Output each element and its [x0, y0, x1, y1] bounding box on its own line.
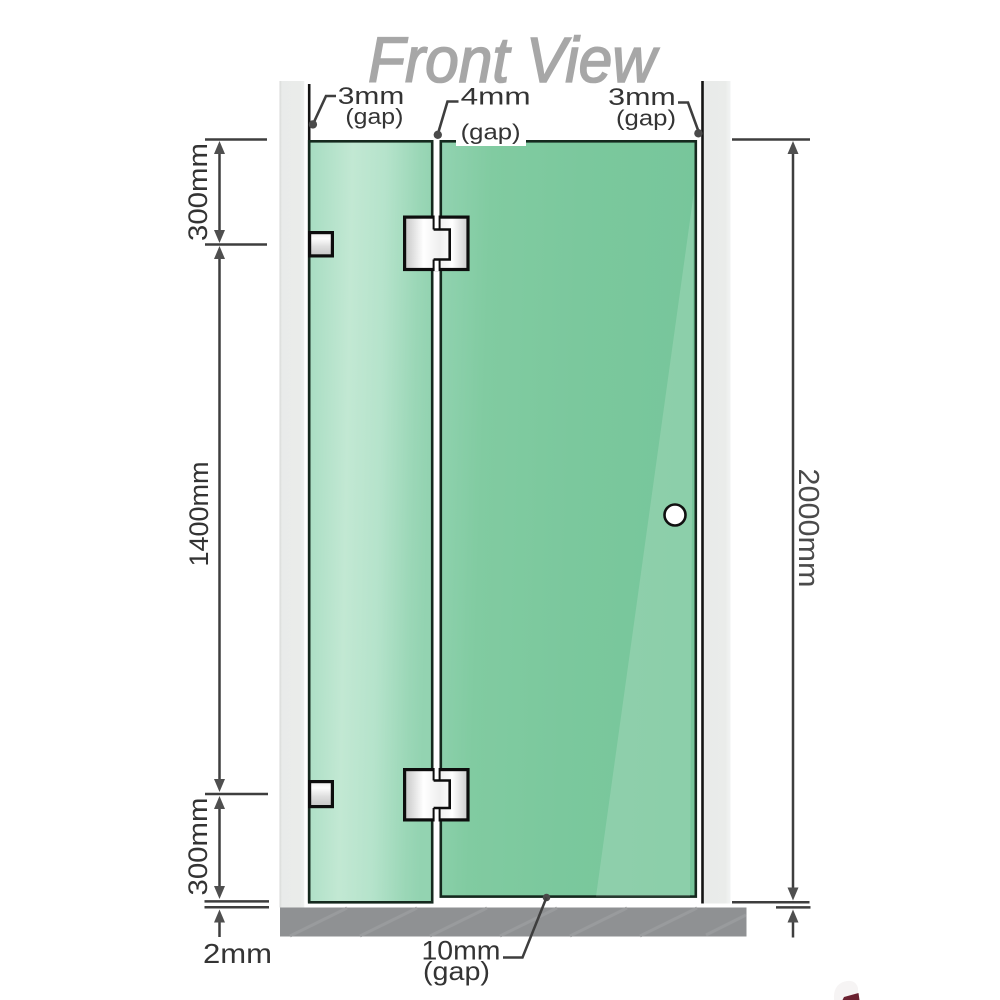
- svg-text:(gap): (gap): [461, 119, 521, 144]
- svg-text:300mm: 300mm: [183, 798, 213, 896]
- svg-text:1400mm: 1400mm: [184, 462, 214, 567]
- svg-text:300mm: 300mm: [183, 143, 213, 241]
- svg-text:(gap): (gap): [616, 106, 676, 131]
- svg-text:4mm: 4mm: [461, 84, 531, 111]
- svg-text:(gap): (gap): [345, 104, 403, 129]
- svg-text:2mm: 2mm: [203, 938, 272, 969]
- svg-text:2000mm: 2000mm: [792, 469, 824, 588]
- svg-text:(gap): (gap): [423, 956, 490, 986]
